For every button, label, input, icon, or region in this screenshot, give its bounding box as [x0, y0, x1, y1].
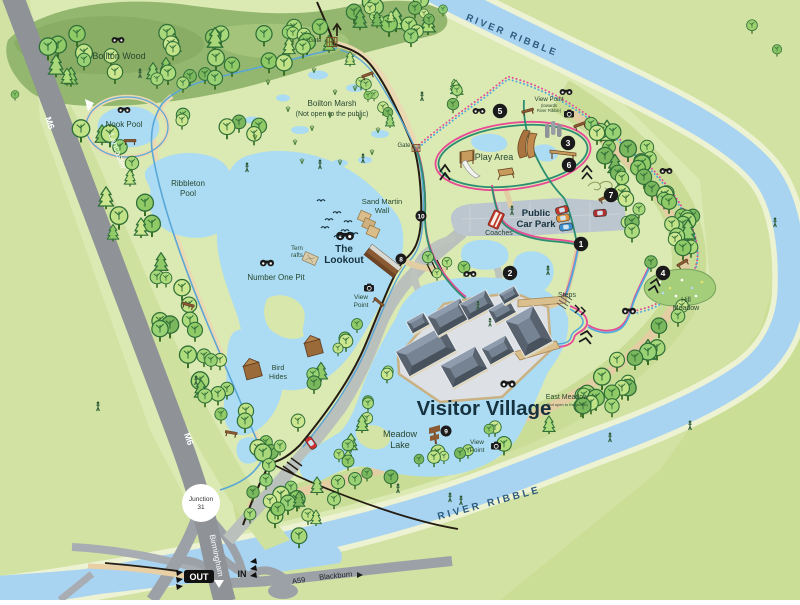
svg-text:Gate: Gate	[308, 38, 322, 44]
svg-text:Nook Pool: Nook Pool	[106, 120, 143, 129]
svg-text:Tern: Tern	[291, 246, 303, 252]
svg-text:A59: A59	[291, 575, 305, 586]
svg-text:1: 1	[579, 239, 584, 249]
svg-text:6: 6	[567, 160, 572, 170]
svg-text:Wall: Wall	[375, 206, 390, 215]
svg-text:Ribbleton: Ribbleton	[171, 179, 205, 188]
svg-text:5: 5	[498, 106, 503, 116]
svg-text:Hill: Hill	[681, 297, 691, 304]
svg-text:Car Park: Car Park	[516, 219, 556, 230]
svg-text:View: View	[354, 294, 368, 301]
svg-text:10: 10	[417, 213, 425, 220]
svg-text:The: The	[335, 244, 353, 255]
svg-text:Point: Point	[354, 302, 369, 309]
svg-text:Lookout: Lookout	[324, 255, 364, 266]
svg-text:View Point: View Point	[534, 96, 563, 103]
svg-text:Sand Martin: Sand Martin	[362, 197, 402, 206]
svg-text:9: 9	[444, 428, 448, 435]
svg-text:Steps: Steps	[558, 292, 576, 299]
svg-text:Public: Public	[522, 208, 551, 219]
svg-text:Gate: Gate	[397, 143, 411, 149]
svg-text:2: 2	[508, 268, 513, 278]
svg-text:Junction: Junction	[189, 496, 214, 503]
svg-text:Meadow: Meadow	[383, 429, 418, 439]
svg-text:Lake: Lake	[390, 440, 410, 450]
svg-text:Play Area: Play Area	[475, 152, 514, 162]
svg-text:(Not open to the public): (Not open to the public)	[296, 111, 369, 118]
svg-text:31: 31	[197, 504, 205, 511]
svg-text:(Not open to the public): (Not open to the public)	[546, 402, 588, 407]
svg-text:rafts: rafts	[291, 253, 303, 259]
svg-text:Boilton Marsh: Boilton Marsh	[308, 99, 357, 108]
svg-text:Number One Pit: Number One Pit	[247, 273, 305, 282]
svg-text:OUT: OUT	[190, 572, 210, 582]
svg-text:East Meadow: East Meadow	[546, 394, 589, 401]
svg-text:7: 7	[609, 190, 614, 200]
svg-text:River Ribble): River Ribble)	[537, 108, 562, 113]
svg-text:Bird: Bird	[272, 365, 285, 372]
svg-text:IN: IN	[238, 569, 247, 579]
svg-text:Hides: Hides	[269, 374, 287, 381]
svg-text:Pool: Pool	[180, 189, 196, 198]
svg-text:3: 3	[566, 138, 571, 148]
svg-text:Coaches: Coaches	[485, 230, 513, 237]
svg-text:8: 8	[399, 256, 403, 263]
svg-text:View: View	[470, 439, 484, 446]
svg-text:4: 4	[661, 268, 666, 278]
svg-text:Meadow: Meadow	[673, 305, 700, 312]
svg-text:Point: Point	[470, 447, 485, 454]
svg-text:Boilton Wood: Boilton Wood	[92, 51, 145, 61]
svg-text:Visitor Village: Visitor Village	[417, 397, 552, 420]
